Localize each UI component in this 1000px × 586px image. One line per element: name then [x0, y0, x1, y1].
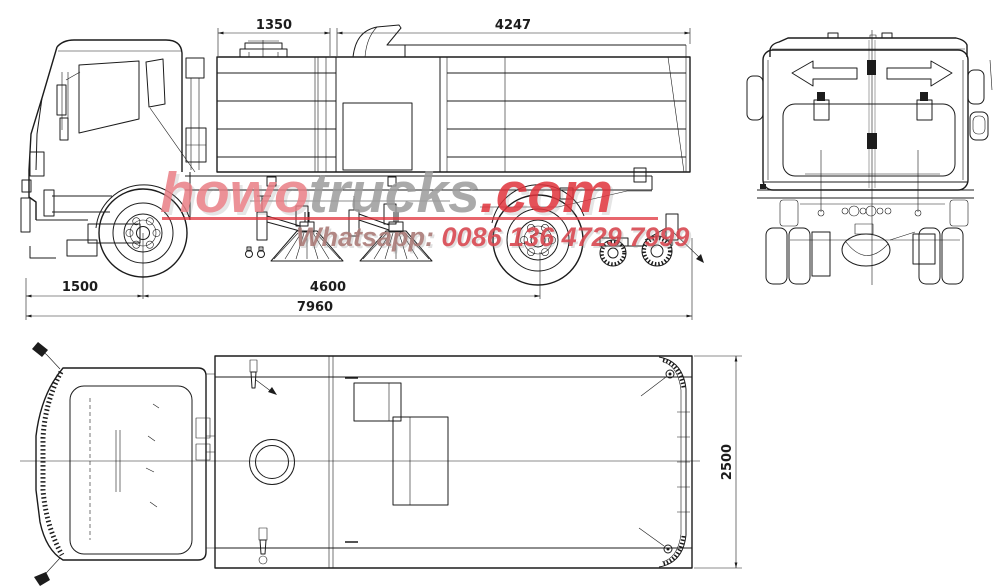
watermark-contact-number: 0086 136 4729 7999 — [442, 222, 690, 252]
dim-label-7960: 7960 — [297, 300, 333, 315]
dimension-1500: 1500 — [26, 233, 143, 320]
plan-nozzle-bottom — [259, 528, 267, 564]
tank-body-side — [217, 25, 690, 172]
dim-label-4247: 4247 — [495, 18, 531, 33]
spray-nozzle-icons — [246, 247, 265, 258]
dim-label-2500: 2500 — [720, 444, 735, 480]
watermark-brand-red: howo — [160, 161, 309, 225]
dimension-1350: 1350 — [218, 18, 337, 56]
watermark-contact-text: Whatsapp: 0086 136 4729 7999 — [296, 222, 689, 253]
rear-axle-differential — [842, 234, 890, 266]
plan-cab — [32, 342, 215, 586]
water-filler-cap — [240, 40, 287, 57]
rear-chassis — [757, 182, 974, 276]
mirror-bottom-left — [34, 558, 60, 586]
arrow-left-icon — [792, 61, 857, 86]
rear-view-drawing — [747, 30, 992, 285]
dim-label-1350: 1350 — [256, 18, 292, 33]
rear-wheels — [766, 228, 963, 284]
truck-blueprint-svg: 1350 4247 1500 4600 7960 — [0, 0, 1000, 586]
mirror-side — [57, 72, 80, 140]
rear-filler-caps — [814, 92, 932, 120]
windshield-hatch-band — [43, 372, 62, 555]
air-intake-scoop — [353, 25, 405, 57]
dim-label-1500: 1500 — [62, 280, 98, 295]
plan-body — [215, 356, 692, 568]
technical-drawing-page: 1350 4247 1500 4600 7960 — [0, 0, 1000, 586]
mirror-top-left — [32, 342, 60, 369]
plan-view-drawing: 2500 — [20, 342, 742, 586]
dimension-2500: 2500 — [694, 356, 742, 568]
watermark-brand-suffix: .com — [480, 161, 613, 225]
watermark-underline — [162, 217, 658, 220]
dim-label-4600: 4600 — [310, 280, 346, 295]
manhole-circle — [250, 440, 295, 485]
arrow-right-icon — [887, 61, 952, 86]
watermark-brand-gray: trucks — [309, 161, 480, 225]
plan-rear-band — [639, 357, 690, 567]
dimension-4247: 4247 — [337, 18, 690, 44]
watermark-contact-label: Whatsapp: — [296, 222, 434, 252]
